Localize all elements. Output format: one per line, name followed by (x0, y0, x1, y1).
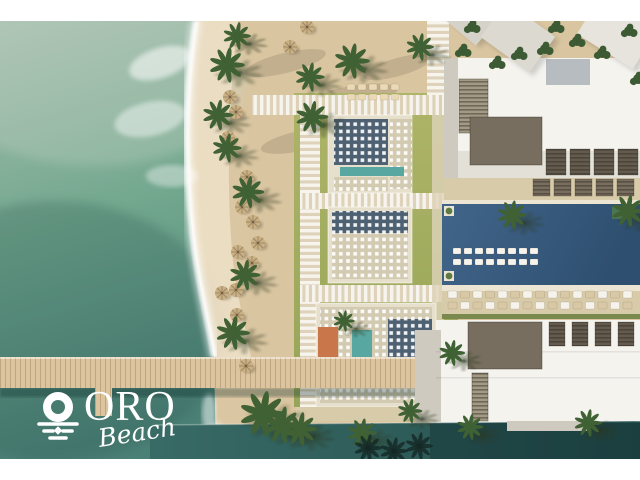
lounge-chair (623, 291, 632, 298)
lounge-chair (475, 259, 483, 265)
building-plinth (507, 421, 587, 431)
beach-umbrella (246, 215, 260, 229)
dining-pavilion-middle (328, 207, 412, 283)
lounge-chair (486, 302, 495, 309)
lounge-chair (598, 302, 607, 309)
lounge-chair (536, 302, 545, 309)
lounge-chair (598, 291, 607, 298)
lounge-chair (473, 302, 482, 309)
lounge-chair (498, 302, 507, 309)
lounge-chair (464, 259, 472, 265)
roof-unit-louvers (546, 149, 566, 175)
oro-beach-rendering: ORO Beach (0, 0, 640, 480)
lounge-chair (380, 94, 388, 100)
lounge-chair (523, 302, 532, 309)
lounge-chair (347, 94, 355, 100)
lounge-chair (511, 291, 520, 298)
lounge-chair (380, 84, 388, 90)
lounge-chair (473, 291, 482, 298)
roof-unit-louvers (554, 179, 571, 196)
lounge-chair (448, 291, 457, 298)
lounge-chair (498, 291, 507, 298)
lounge-chair (464, 248, 472, 254)
roof-unit-louvers (618, 149, 638, 175)
lounge-chair (523, 291, 532, 298)
lounge-chair (623, 302, 632, 309)
lounge-chair (369, 94, 377, 100)
lounge-chair (461, 291, 470, 298)
lounge-chair (548, 291, 557, 298)
lounge-chair (497, 259, 505, 265)
lounge-chair (519, 248, 527, 254)
roof-unit-louvers (618, 322, 634, 346)
lounge-chair (475, 248, 483, 254)
lounge-chair (358, 84, 366, 90)
beach-umbrella (215, 286, 229, 300)
building-west-wing (415, 330, 441, 422)
beach-umbrella (239, 359, 253, 373)
roof-unit-louvers (549, 322, 565, 346)
flower-bed (318, 327, 338, 357)
lounge-chair (573, 291, 582, 298)
lounge-chair (369, 84, 377, 90)
lounge-chair (548, 302, 557, 309)
roof-unit-louvers (575, 179, 592, 196)
foam-patch (146, 165, 198, 187)
lounge-chair (586, 291, 595, 298)
lounge-chair (453, 248, 461, 254)
lounge-chair (508, 248, 516, 254)
pavilion-plunge-pool (340, 167, 404, 176)
roof-unit-louvers (533, 179, 550, 196)
lounge-chair (511, 302, 520, 309)
lounge-chair (536, 291, 545, 298)
lounge-chair (391, 94, 399, 100)
roof-unit-louvers (570, 149, 590, 175)
roof-unit-louvers (594, 149, 614, 175)
lounge-chair (508, 259, 516, 265)
lounge-chair (486, 259, 494, 265)
sun-over-waves-icon (36, 392, 80, 444)
lounge-chair (611, 291, 620, 298)
lounge-chair (573, 302, 582, 309)
lounge-chair (453, 259, 461, 265)
lounge-chair (530, 259, 538, 265)
main-pool (442, 204, 640, 285)
lounge-chair (391, 84, 399, 90)
lounge-chair (586, 302, 595, 309)
lounge-chair (358, 94, 366, 100)
lounge-chair (486, 291, 495, 298)
roof-unit-louvers (572, 322, 588, 346)
lounge-chair (530, 248, 538, 254)
lounge-chair (611, 302, 620, 309)
roof-terrace (546, 59, 590, 85)
lounge-chair (461, 302, 470, 309)
beach-umbrella (223, 90, 237, 104)
beach-umbrella (300, 21, 314, 34)
roof-unit-louvers (595, 322, 611, 346)
beach-umbrella (283, 40, 297, 54)
lounge-chair (561, 302, 570, 309)
roof-dark-block (470, 117, 542, 165)
hedge-strip (442, 314, 640, 319)
beach-umbrella (231, 245, 245, 259)
oro-beach-logo: ORO Beach (36, 390, 206, 458)
roof-unit-louvers (617, 179, 634, 196)
beach-umbrella (251, 236, 265, 250)
main-pool-area (442, 200, 640, 291)
lounge-chair (497, 248, 505, 254)
roof-unit-louvers (596, 179, 613, 196)
lounge-chair (519, 259, 527, 265)
beach-umbrella (229, 105, 243, 119)
lounge-chair (448, 302, 457, 309)
lounge-chair (347, 84, 355, 90)
lounge-chair (486, 248, 494, 254)
lounge-chair (561, 291, 570, 298)
